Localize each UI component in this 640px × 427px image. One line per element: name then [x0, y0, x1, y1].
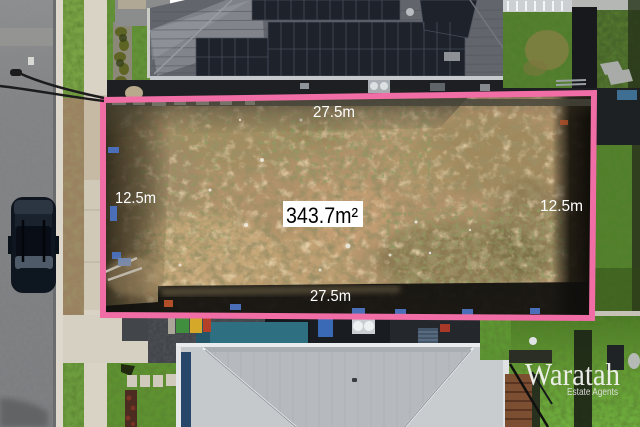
svg-text:12.5m: 12.5m [540, 198, 583, 215]
svg-text:27.5m: 27.5m [310, 288, 351, 305]
svg-text:12.5m: 12.5m [115, 190, 156, 207]
svg-text:27.5m: 27.5m [313, 104, 355, 121]
svg-text:Estate Agents: Estate Agents [567, 386, 618, 398]
svg-text:343.7m²: 343.7m² [286, 203, 358, 228]
